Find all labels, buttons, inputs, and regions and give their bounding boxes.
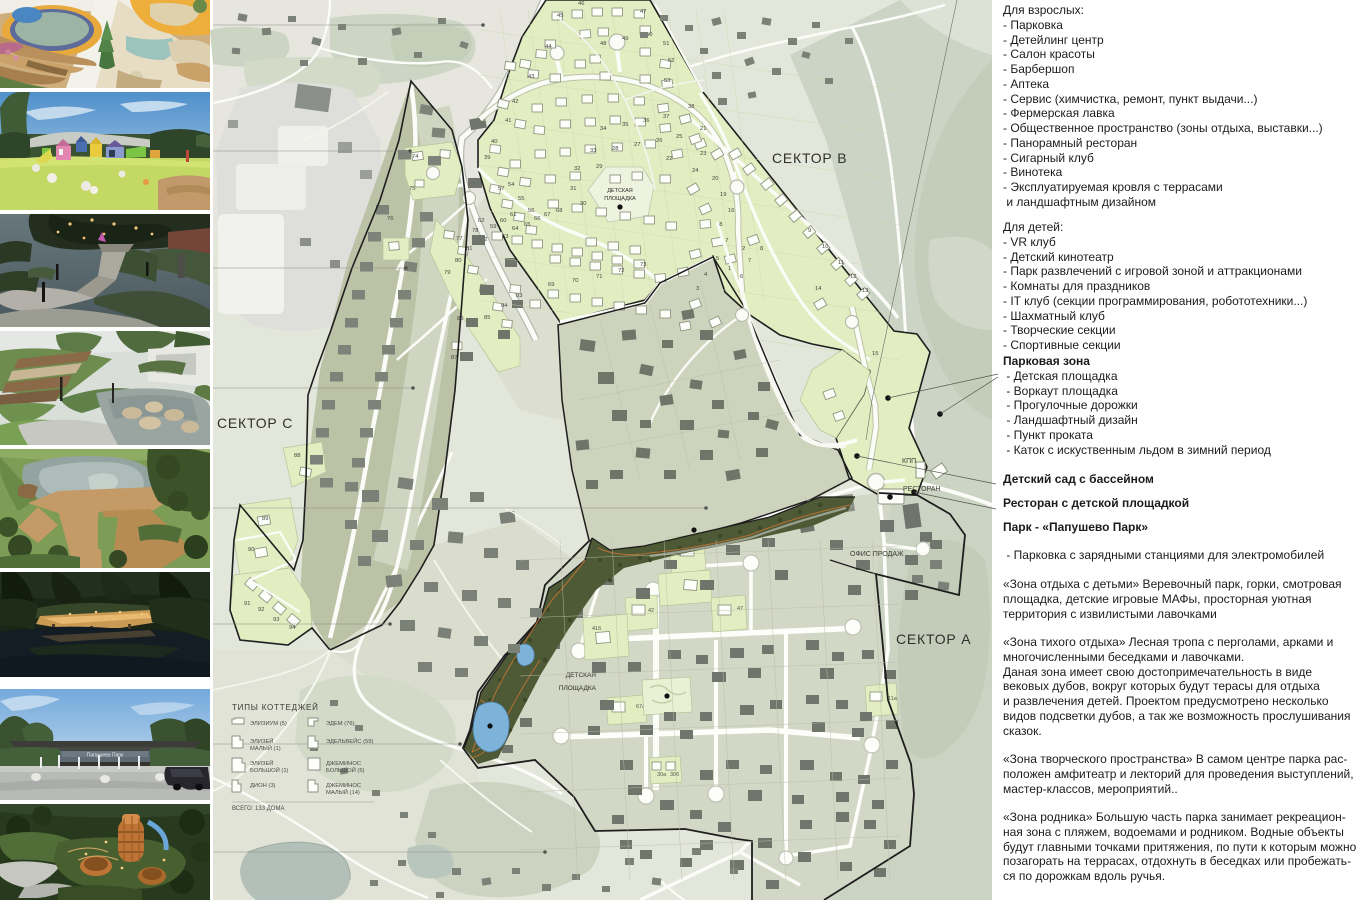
svg-text:34: 34 xyxy=(600,126,607,132)
svg-text:ЭЛИЗЕЙ: ЭЛИЗЕЙ xyxy=(250,759,273,767)
svg-text:46: 46 xyxy=(578,1,584,7)
svg-text:41: 41 xyxy=(505,118,511,124)
svg-text:ВСЕГО: 133 ДОМА: ВСЕГО: 133 ДОМА xyxy=(232,806,284,812)
svg-text:81: 81 xyxy=(466,246,472,252)
svg-text:68: 68 xyxy=(556,208,562,214)
svg-text:9: 9 xyxy=(808,228,811,234)
svg-text:79: 79 xyxy=(444,270,450,276)
svg-text:БОЛЬШОЙ (1): БОЛЬШОЙ (1) xyxy=(250,766,289,774)
svg-text:10: 10 xyxy=(822,244,828,250)
svg-text:ДЕТСКАЯ: ДЕТСКАЯ xyxy=(566,672,597,679)
svg-text:57: 57 xyxy=(498,186,504,192)
svg-text:ЭДЕМ (76): ЭДЕМ (76) xyxy=(326,721,355,727)
svg-text:26: 26 xyxy=(656,138,662,144)
svg-text:ДИОН (3): ДИОН (3) xyxy=(250,783,276,789)
svg-text:11a: 11a xyxy=(888,696,898,702)
svg-text:ОФИС ПРОДАЖ: ОФИС ПРОДАЖ xyxy=(850,551,904,558)
svg-text:15: 15 xyxy=(872,351,878,357)
svg-text:56: 56 xyxy=(528,208,534,214)
svg-text:67: 67 xyxy=(544,212,550,218)
svg-text:22: 22 xyxy=(666,156,672,162)
svg-text:КПП: КПП xyxy=(902,458,916,465)
svg-text:СЕКТОР B: СЕКТОР B xyxy=(772,150,847,166)
svg-text:55: 55 xyxy=(518,196,524,202)
svg-text:БОЛЬШОЙ (5): БОЛЬШОЙ (5) xyxy=(326,766,365,774)
svg-text:63: 63 xyxy=(502,234,508,240)
svg-text:60: 60 xyxy=(500,218,506,224)
svg-text:87: 87 xyxy=(451,355,457,361)
svg-text:27: 27 xyxy=(634,142,640,148)
svg-text:69: 69 xyxy=(548,282,554,288)
svg-text:ЭЛИЗИУМ (5): ЭЛИЗИУМ (5) xyxy=(250,721,287,727)
svg-text:25: 25 xyxy=(676,134,682,140)
svg-text:ДЖЕМИНОС: ДЖЕМИНОС xyxy=(326,783,361,789)
svg-text:6: 6 xyxy=(740,274,743,280)
svg-text:37: 37 xyxy=(663,114,669,120)
svg-text:40: 40 xyxy=(491,139,497,145)
svg-text:94: 94 xyxy=(289,625,296,631)
svg-text:70: 70 xyxy=(572,278,578,284)
svg-text:36: 36 xyxy=(643,118,649,124)
svg-text:38: 38 xyxy=(688,104,694,110)
svg-text:8: 8 xyxy=(760,246,763,252)
svg-text:ПЛОЩАДКА: ПЛОЩАДКА xyxy=(559,685,597,692)
svg-text:54: 54 xyxy=(508,182,515,188)
svg-text:47: 47 xyxy=(640,9,646,15)
svg-text:СЕКТОР C: СЕКТОР C xyxy=(217,415,293,431)
svg-text:90: 90 xyxy=(248,547,254,553)
svg-text:30a: 30a xyxy=(657,772,667,778)
svg-text:47: 47 xyxy=(737,606,743,612)
svg-text:53: 53 xyxy=(664,78,670,84)
svg-text:59: 59 xyxy=(490,224,496,230)
svg-text:ТИПЫ КОТТЕДЖЕЙ: ТИПЫ КОТТЕДЖЕЙ xyxy=(232,703,319,712)
svg-text:2: 2 xyxy=(742,246,745,252)
svg-text:80: 80 xyxy=(455,258,461,264)
svg-text:23: 23 xyxy=(700,151,706,157)
svg-text:66: 66 xyxy=(534,216,540,222)
svg-text:30: 30 xyxy=(580,201,586,207)
svg-text:85: 85 xyxy=(484,315,490,321)
svg-text:64: 64 xyxy=(512,226,519,232)
svg-text:ДЕТСКАЯ: ДЕТСКАЯ xyxy=(607,188,633,194)
svg-text:21: 21 xyxy=(700,126,706,132)
svg-text:91: 91 xyxy=(244,601,250,607)
svg-text:65: 65 xyxy=(524,222,530,228)
svg-text:11: 11 xyxy=(838,260,844,266)
svg-text:ПЛОЩАДКА: ПЛОЩАДКА xyxy=(604,196,636,202)
svg-text:75: 75 xyxy=(409,186,415,192)
svg-text:35: 35 xyxy=(622,122,628,128)
svg-text:ДЖЕМИНОС: ДЖЕМИНОС xyxy=(326,761,361,767)
svg-text:72: 72 xyxy=(618,268,624,274)
svg-text:29: 29 xyxy=(596,164,602,170)
svg-text:78: 78 xyxy=(472,228,478,234)
svg-text:31: 31 xyxy=(570,186,576,192)
svg-text:45: 45 xyxy=(557,13,563,19)
svg-text:416: 416 xyxy=(592,626,601,632)
svg-text:49: 49 xyxy=(622,36,628,42)
svg-text:20: 20 xyxy=(712,176,718,182)
svg-text:83: 83 xyxy=(516,293,522,299)
svg-text:19: 19 xyxy=(720,192,726,198)
svg-text:51: 51 xyxy=(663,41,669,47)
svg-text:7: 7 xyxy=(748,258,751,264)
svg-text:71: 71 xyxy=(596,274,602,280)
svg-text:42: 42 xyxy=(512,99,518,105)
svg-text:77: 77 xyxy=(456,236,462,242)
svg-text:ЭДЕЛЬВЕЙС (59): ЭДЕЛЬВЕЙС (59) xyxy=(326,737,373,745)
svg-text:76: 76 xyxy=(387,216,393,222)
svg-text:14: 14 xyxy=(815,286,822,292)
svg-text:73: 73 xyxy=(640,262,646,268)
svg-text:93: 93 xyxy=(273,617,279,623)
svg-text:44: 44 xyxy=(545,44,552,50)
svg-text:48: 48 xyxy=(600,41,606,47)
svg-text:12: 12 xyxy=(850,274,856,280)
svg-text:СЕКТОР А: СЕКТОР А xyxy=(896,631,971,647)
svg-text:30б: 30б xyxy=(670,772,679,778)
svg-text:МАЛЫЙ (14): МАЛЫЙ (14) xyxy=(326,788,360,796)
svg-text:74: 74 xyxy=(412,154,419,160)
svg-text:33: 33 xyxy=(590,148,596,154)
svg-text:92: 92 xyxy=(258,607,264,613)
svg-text:62: 62 xyxy=(478,218,484,224)
svg-text:32: 32 xyxy=(574,166,580,172)
svg-text:28: 28 xyxy=(612,146,618,152)
svg-text:52: 52 xyxy=(668,58,674,64)
svg-text:16: 16 xyxy=(728,208,734,214)
svg-text:5: 5 xyxy=(716,256,719,262)
svg-text:88: 88 xyxy=(294,453,300,459)
svg-text:39: 39 xyxy=(484,155,490,161)
svg-text:13: 13 xyxy=(862,288,868,294)
svg-text:24: 24 xyxy=(692,168,699,174)
svg-text:РЕСТОРАН: РЕСТОРАН xyxy=(903,486,941,493)
svg-text:3: 3 xyxy=(696,286,699,292)
svg-text:61: 61 xyxy=(510,212,516,218)
svg-text:ЭЛИЗЕЙ: ЭЛИЗЕЙ xyxy=(250,737,273,745)
svg-text:89: 89 xyxy=(262,516,268,522)
svg-text:МАЛЫЙ (1): МАЛЫЙ (1) xyxy=(250,744,281,752)
svg-text:43: 43 xyxy=(528,74,534,80)
